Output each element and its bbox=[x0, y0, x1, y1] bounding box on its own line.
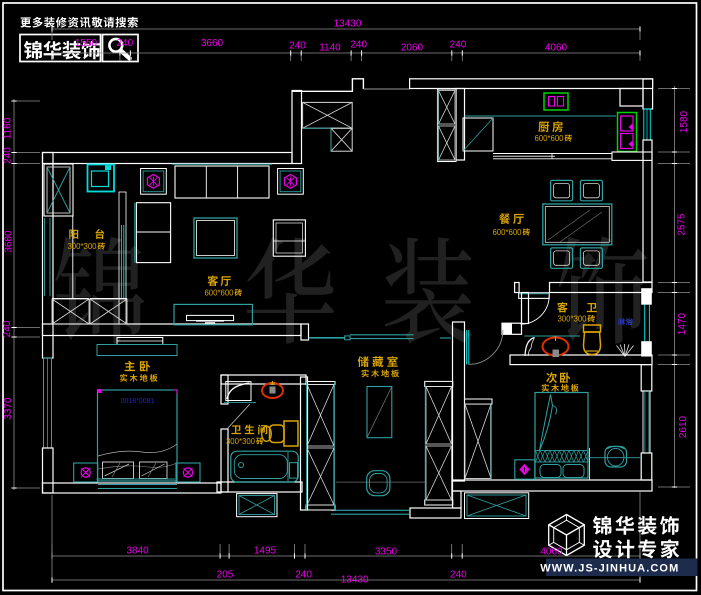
svg-text:13430: 13430 bbox=[341, 575, 369, 586]
svg-text:1580: 1580 bbox=[679, 110, 690, 133]
svg-text:2610: 2610 bbox=[678, 415, 689, 438]
svg-text:3680: 3680 bbox=[4, 230, 15, 253]
svg-text:240: 240 bbox=[289, 41, 306, 52]
svg-text:2060: 2060 bbox=[401, 43, 424, 54]
svg-text:1140: 1140 bbox=[319, 43, 341, 54]
svg-text:240: 240 bbox=[2, 320, 13, 337]
svg-text:3660: 3660 bbox=[201, 38, 224, 49]
svg-text:240: 240 bbox=[295, 570, 312, 581]
svg-text:300*300: 300*300 bbox=[226, 437, 256, 446]
svg-text:1470: 1470 bbox=[677, 312, 688, 335]
svg-text:WWW.JS-JINHUA.COM: WWW.JS-JINHUA.COM bbox=[540, 562, 679, 574]
svg-text:0018*0081: 0018*0081 bbox=[121, 398, 155, 405]
svg-text:240: 240 bbox=[116, 38, 133, 49]
svg-text:240: 240 bbox=[450, 570, 467, 581]
svg-text:1550: 1550 bbox=[75, 38, 98, 49]
svg-text:3370: 3370 bbox=[3, 397, 14, 420]
svg-text:240: 240 bbox=[450, 40, 467, 51]
svg-text:13430: 13430 bbox=[334, 19, 362, 30]
svg-text:600*600: 600*600 bbox=[204, 289, 234, 298]
svg-text:4060: 4060 bbox=[540, 547, 563, 558]
svg-text:300*300: 300*300 bbox=[67, 242, 97, 251]
svg-text:3840: 3840 bbox=[126, 546, 149, 557]
svg-text:2575: 2575 bbox=[677, 213, 688, 236]
svg-text:600*600: 600*600 bbox=[492, 228, 522, 237]
svg-text:300*300: 300*300 bbox=[557, 315, 587, 324]
svg-text:1160: 1160 bbox=[3, 117, 14, 139]
svg-text:600*600: 600*600 bbox=[534, 134, 564, 143]
svg-text:4060: 4060 bbox=[545, 43, 568, 54]
svg-text:240: 240 bbox=[350, 40, 367, 51]
svg-text:205: 205 bbox=[217, 570, 234, 581]
svg-text:1495: 1495 bbox=[254, 546, 277, 557]
svg-text:240: 240 bbox=[3, 147, 14, 164]
svg-text:3350: 3350 bbox=[375, 547, 398, 558]
